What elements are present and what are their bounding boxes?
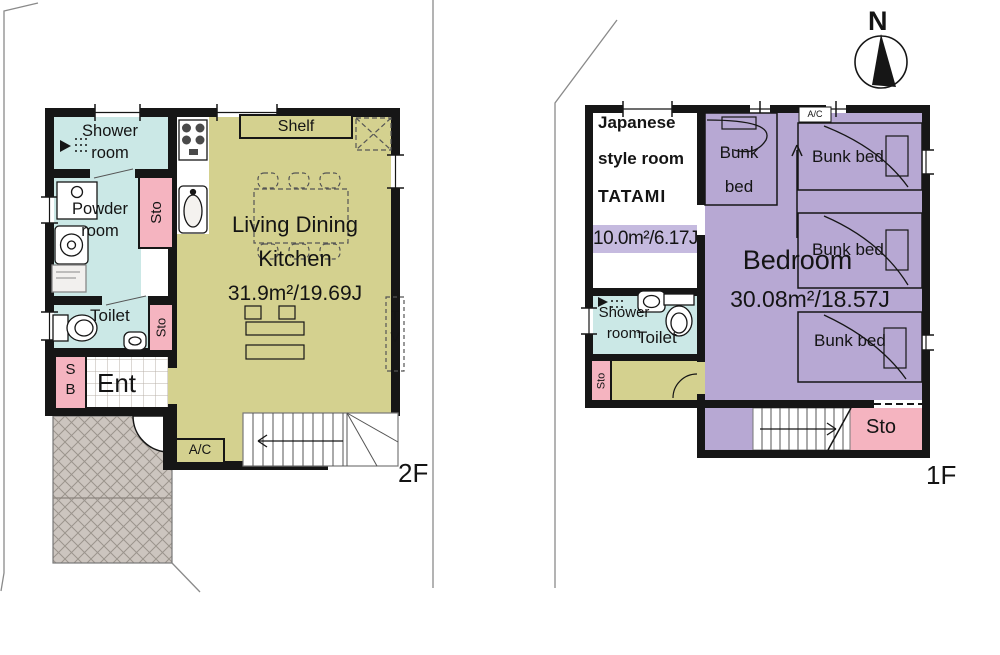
floor-label-1f: 1F [926,460,956,491]
ldk-label: Living Dining Kitchen [205,208,385,276]
entrance-label: Ent [97,368,136,399]
bedroom-area-label: 30.08m²/18.57J [705,286,915,313]
japanese-area-label: 10.0m²/6.17J [593,228,697,250]
floorplan-canvas: Shower room Powder room Sto Toilet Sto S… [0,0,1000,655]
ac-label-1f: A/C [799,109,831,119]
japanese-room-label-3: TATAMI [598,186,666,207]
powder-room-label: Powder room [56,198,144,243]
storage-corridor-label-1f: Sto [595,372,607,389]
compass-needle [872,34,896,87]
stairs-2f [243,413,398,466]
bunk-bed-bottom-label: Bunk bed [814,331,886,351]
stove-icon [179,120,207,160]
bedroom-label: Bedroom [715,245,880,276]
ac-label-2f: A/C [176,442,224,457]
ldk-area-label: 31.9m²/19.69J [200,282,390,306]
plan-2f [41,104,404,592]
floor-label-2f: 2F [398,458,428,489]
tv-label: T V [386,304,404,349]
japanese-room-label-1: Japanese [598,113,676,133]
shelf-label: Shelf [240,116,352,137]
shoe-box-label: S B [55,360,86,399]
storage-stairs-label-1f: Sto [866,416,896,439]
bunk-bed-small-label: Bunk bed [703,136,775,204]
compass-north-label: N [868,6,888,37]
toilet-label-1f: Toilet [637,328,677,348]
kitchen-sink-icon [179,186,207,233]
corner-sink-icon [124,332,146,350]
toilet-label-2f: Toilet [90,306,130,326]
compass-rose [855,34,907,88]
drum-machine-icon [52,265,86,292]
shower-room-label-2f: Shower room [55,120,165,165]
bunk-bed-top-label: Bunk bed [812,147,884,167]
storage-upper-label-2f: Sto [147,201,164,224]
japanese-room-label-2: style room [598,149,684,169]
storage-lower-label-2f: Sto [153,318,168,338]
